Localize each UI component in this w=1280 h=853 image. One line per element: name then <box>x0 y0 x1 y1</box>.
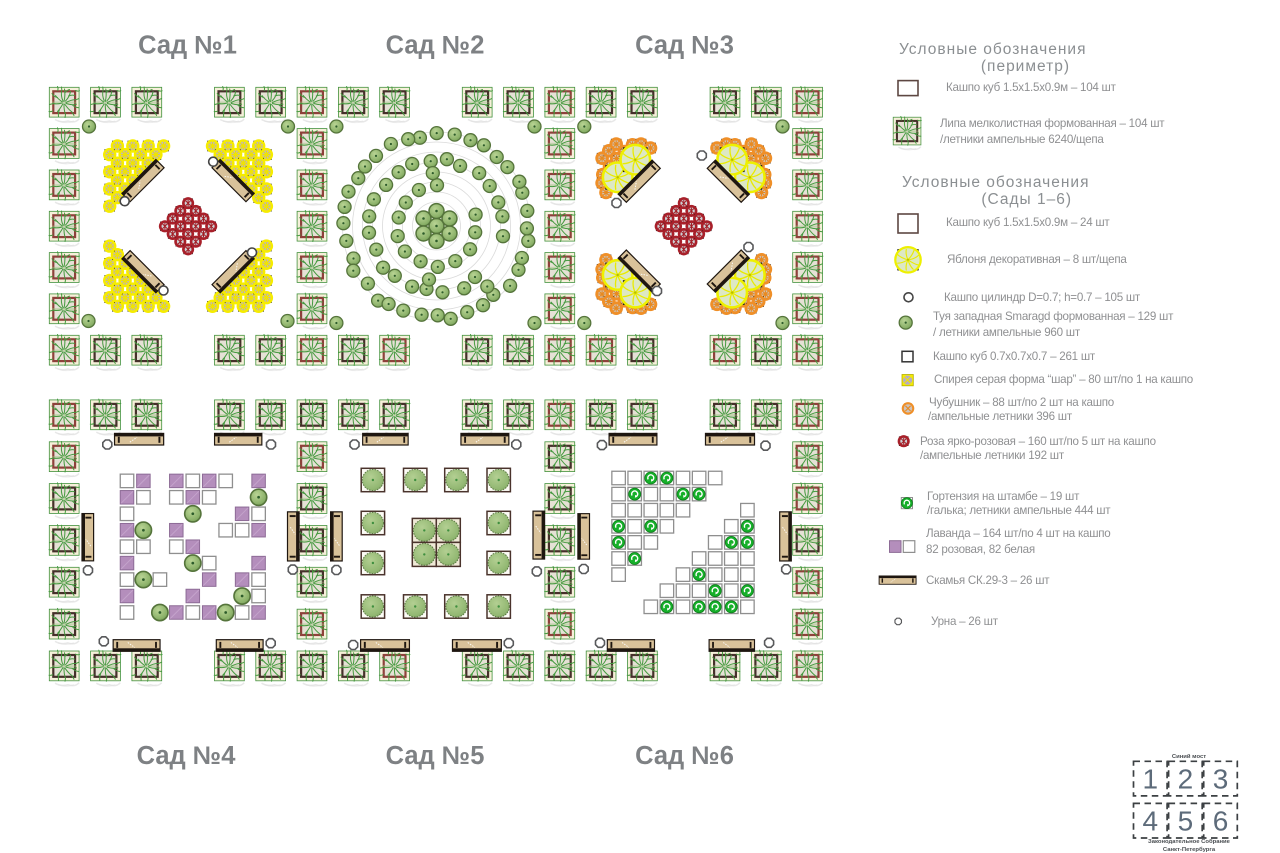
svg-text:Сад №3: Сад №3 <box>635 32 734 60</box>
svg-text:Законодательное Собрание: Законодательное Собрание <box>1148 838 1231 845</box>
svg-text:Липа мелколистная формованная: Липа мелколистная формованная – 104 шт <box>940 117 1165 130</box>
svg-text:Кашпо цилиндр D=0.7; h=0.7 – 1: Кашпо цилиндр D=0.7; h=0.7 – 105 шт <box>944 291 1141 304</box>
svg-text:Условные обозначения: Условные обозначения <box>899 41 1086 58</box>
svg-text:/летники ампельные 6240/щепа: /летники ампельные 6240/щепа <box>940 133 1104 146</box>
svg-text:Кашпо куб 1.5х1.5х0.9м – 24 шт: Кашпо куб 1.5х1.5х0.9м – 24 шт <box>946 216 1110 229</box>
svg-text:Спирея серая форма “шар” – 80: Спирея серая форма “шар” – 80 шт/по 1 на… <box>934 373 1193 386</box>
svg-text:(периметр): (периметр) <box>981 58 1070 75</box>
svg-text:Сад №4: Сад №4 <box>137 742 237 770</box>
svg-text:Синий мост: Синий мост <box>1172 753 1206 760</box>
svg-text:Туя западная Smaragd формованн: Туя западная Smaragd формованная – 129 ш… <box>933 310 1174 323</box>
svg-text:Кашпо куб 1.5х1.5х0.9м – 104 ш: Кашпо куб 1.5х1.5х0.9м – 104 шт <box>946 81 1117 94</box>
svg-text:Яблоня декоративная – 8 шт/щеп: Яблоня декоративная – 8 шт/щепа <box>947 253 1127 266</box>
svg-text:Чубушник – 88 шт/по 2 шт на ка: Чубушник – 88 шт/по 2 шт на кашпо <box>929 396 1114 409</box>
svg-text:2: 2 <box>1178 763 1194 794</box>
svg-text:Лаванда – 164 шт/по 4 шт на ка: Лаванда – 164 шт/по 4 шт на кашпо <box>926 527 1111 540</box>
svg-text:Санкт-Петербурга: Санкт-Петербурга <box>1163 846 1216 853</box>
svg-text:Урна – 26 шт: Урна – 26 шт <box>931 615 999 628</box>
svg-text:/ летники ампельные 960 шт: / летники ампельные 960 шт <box>933 326 1081 339</box>
svg-text:Сад №6: Сад №6 <box>635 742 734 770</box>
svg-text:/галька; летники ампельные 444: /галька; летники ампельные 444 шт <box>927 504 1111 517</box>
svg-text:5: 5 <box>1178 805 1194 836</box>
svg-text:Роза ярко-розовая – 160 шт/по: Роза ярко-розовая – 160 шт/по 5 шт на ка… <box>920 435 1156 448</box>
svg-text:Сад №2: Сад №2 <box>386 32 485 60</box>
svg-text:Кашпо куб 0.7х0.7х0.7 – 261 шт: Кашпо куб 0.7х0.7х0.7 – 261 шт <box>933 350 1096 363</box>
svg-text:Условные обозначения: Условные обозначения <box>902 174 1089 191</box>
svg-text:3: 3 <box>1213 763 1229 794</box>
svg-text:/ампельные летники 192 шт: /ампельные летники 192 шт <box>920 449 1065 462</box>
svg-text:6: 6 <box>1213 805 1229 836</box>
svg-text:(Сады 1–6): (Сады 1–6) <box>981 191 1072 208</box>
svg-text:Гортензия на штамбе – 19 шт: Гортензия на штамбе – 19 шт <box>927 490 1080 503</box>
svg-text:1: 1 <box>1143 763 1159 794</box>
svg-text:Сад №1: Сад №1 <box>138 32 237 60</box>
svg-text:Скамья СК.29-3 – 26 шт: Скамья СК.29-3 – 26 шт <box>926 574 1050 587</box>
svg-text:Сад №5: Сад №5 <box>386 742 485 770</box>
svg-text:82 розовая, 82 белая: 82 розовая, 82 белая <box>926 543 1035 556</box>
svg-text:4: 4 <box>1143 805 1159 836</box>
svg-text:/ампельные летники 396 шт: /ампельные летники 396 шт <box>928 410 1073 423</box>
